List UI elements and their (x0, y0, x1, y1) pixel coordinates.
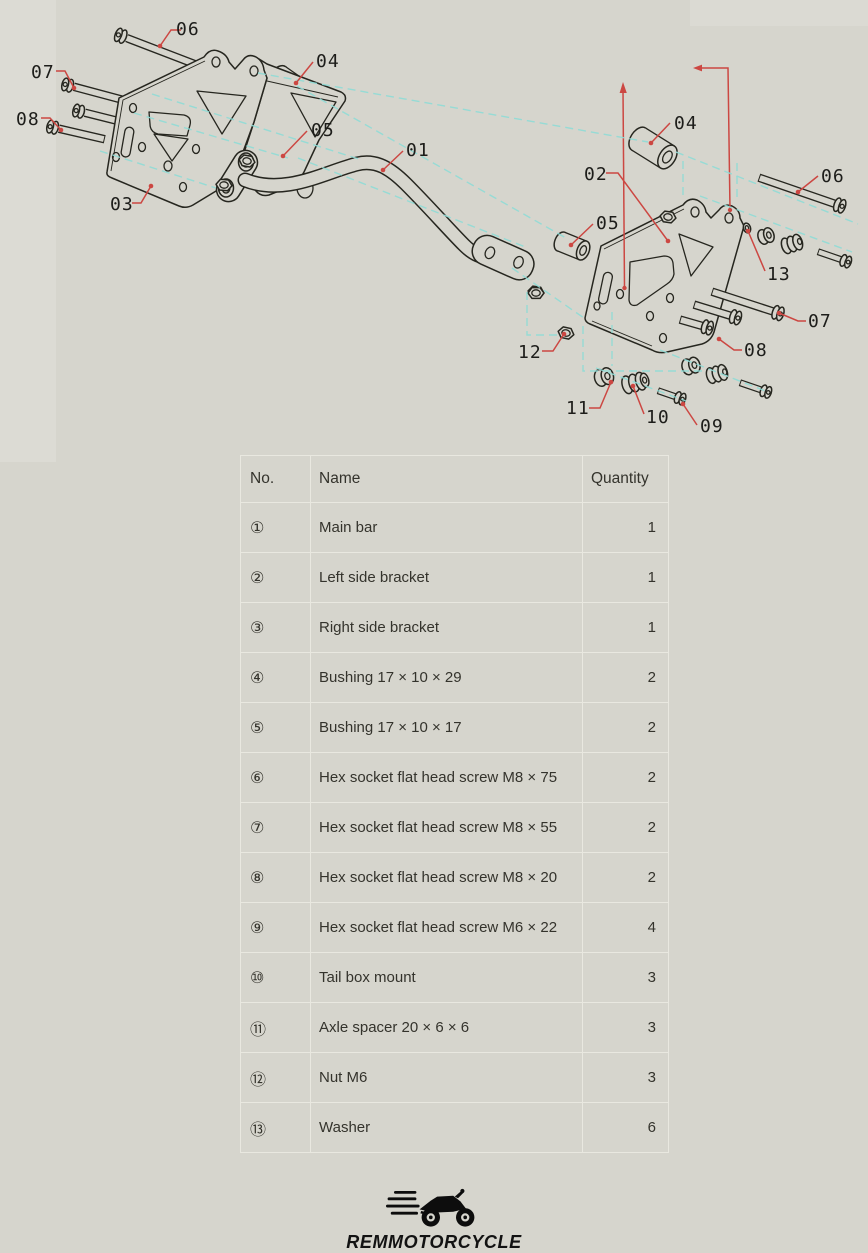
brand-name: REMMOTORCYCLE (346, 1232, 521, 1253)
header-no: No. (241, 456, 310, 502)
parts-table: No. Name Quantity ①Main bar1②Left side b… (240, 455, 669, 1153)
table-row: ③Right side bracket1 (241, 602, 668, 652)
speed-line (391, 1212, 418, 1215)
part-number-label: 06 (821, 166, 845, 187)
left-assembly (46, 27, 545, 298)
rubber-mount-drawing (780, 233, 805, 255)
cell-name: Hex socket flat head screw M8 × 55 (310, 803, 582, 852)
cell-no: ④ (241, 653, 310, 702)
callout-06: 06 (158, 19, 200, 48)
axle-spacer-drawing (593, 366, 616, 387)
cell-quantity: 1 (582, 503, 668, 552)
part-number-label: 01 (406, 140, 430, 161)
cell-no: ⑪ (241, 1003, 310, 1052)
cell-no: ⑨ (241, 903, 310, 952)
exploded-diagram: 060708030405010402050613070812111009 (0, 0, 868, 452)
cell-no: ⑦ (241, 803, 310, 852)
cell-quantity: 3 (582, 1053, 668, 1102)
part-number-label: 10 (646, 407, 670, 428)
cell-no: ⑫ (241, 1053, 310, 1102)
cell-no: ③ (241, 603, 310, 652)
callout-09: 09 (681, 402, 724, 437)
part-number-label: 08 (744, 340, 768, 361)
cell-name: Hex socket flat head screw M8 × 75 (310, 753, 582, 802)
table-row: ⑬Washer6 (241, 1102, 668, 1152)
cell-name: Tail box mount (310, 953, 582, 1002)
part-number-label: 09 (700, 416, 724, 437)
cell-no: ⑬ (241, 1103, 310, 1152)
nut-m6-drawing (528, 288, 544, 299)
cell-no: ⑥ (241, 753, 310, 802)
speed-line (388, 1197, 417, 1200)
table-row: ⑨Hex socket flat head screw M6 × 224 (241, 902, 668, 952)
right-assembly (528, 124, 853, 406)
cell-quantity: 3 (582, 1003, 668, 1052)
part-number-label: 05 (311, 120, 335, 141)
part-number-label: 06 (176, 19, 200, 40)
screw-m6x22-drawing (816, 246, 853, 269)
cell-name: Nut M6 (310, 1053, 582, 1102)
part-number-label: 04 (316, 51, 340, 72)
table-row: ⑩Tail box mount3 (241, 952, 668, 1002)
callout-08: 08 (717, 337, 768, 361)
bushing-17x10x29-drawing (625, 124, 681, 173)
cell-no: ⑤ (241, 703, 310, 752)
screw-m6x22-drawing (738, 377, 773, 399)
cell-name: Axle spacer 20 × 6 × 6 (310, 1003, 582, 1052)
cell-quantity: 1 (582, 553, 668, 602)
cell-quantity: 2 (582, 753, 668, 802)
cell-quantity: 2 (582, 853, 668, 902)
callout-07: 07 (777, 311, 832, 332)
table-row: ⑥Hex socket flat head screw M8 × 752 (241, 752, 668, 802)
part-number-label: 13 (767, 264, 791, 285)
cell-no: ⑩ (241, 953, 310, 1002)
callout-12: 12 (518, 332, 566, 363)
header-quantity: Quantity (582, 456, 668, 502)
part-number-label: 11 (566, 398, 590, 419)
cell-quantity: 3 (582, 953, 668, 1002)
cell-quantity: 2 (582, 803, 668, 852)
cell-quantity: 6 (582, 1103, 668, 1152)
part-number-label: 07 (31, 62, 55, 83)
rubber-mount-drawing (705, 364, 729, 385)
table-body: ①Main bar1②Left side bracket1③Right side… (241, 502, 668, 1152)
bar-end-plate-drawing (468, 231, 539, 284)
cell-no: ① (241, 503, 310, 552)
table-row: ⑤Bushing 17 × 10 × 172 (241, 702, 668, 752)
cell-name: Washer (310, 1103, 582, 1152)
table-row: ⑫Nut M63 (241, 1052, 668, 1102)
callout-11: 11 (566, 380, 613, 419)
motorcycle-icon (386, 1183, 482, 1231)
brand-logo: REMMOTORCYCLE (0, 1183, 868, 1253)
cell-quantity: 4 (582, 903, 668, 952)
part-number-label: 03 (110, 194, 134, 215)
speed-line (386, 1205, 420, 1208)
cell-name: Hex socket flat head screw M6 × 22 (310, 903, 582, 952)
cell-name: Main bar (310, 503, 582, 552)
cell-no: ② (241, 553, 310, 602)
part-number-label: 12 (518, 342, 542, 363)
table-row: ②Left side bracket1 (241, 552, 668, 602)
part-number-label: 02 (584, 164, 608, 185)
axle-spacer-drawing (680, 356, 702, 376)
cell-name: Right side bracket (310, 603, 582, 652)
header-name: Name (310, 456, 582, 502)
table-row: ⑪Axle spacer 20 × 6 × 63 (241, 1002, 668, 1052)
cell-name: Bushing 17 × 10 × 17 (310, 703, 582, 752)
part-number-label: 08 (16, 109, 40, 130)
cell-no: ⑧ (241, 853, 310, 902)
cell-quantity: 2 (582, 653, 668, 702)
cell-quantity: 1 (582, 603, 668, 652)
part-number-label: 07 (808, 311, 832, 332)
cell-name: Bushing 17 × 10 × 29 (310, 653, 582, 702)
table-header-row: No. Name Quantity (241, 456, 668, 502)
speed-line (394, 1191, 416, 1194)
table-row: ①Main bar1 (241, 502, 668, 552)
table-row: ⑧Hex socket flat head screw M8 × 202 (241, 852, 668, 902)
part-number-label: 04 (674, 113, 698, 134)
table-row: ⑦Hex socket flat head screw M8 × 552 (241, 802, 668, 852)
cell-quantity: 2 (582, 703, 668, 752)
part-number-label: 05 (596, 213, 620, 234)
cell-name: Hex socket flat head screw M8 × 20 (310, 853, 582, 902)
manual-page: { "page": { "background": "#d6d5cd" }, "… (0, 0, 868, 1245)
tail-box-mount-spacer-drawing (756, 226, 776, 245)
cell-name: Left side bracket (310, 553, 582, 602)
table-row: ④Bushing 17 × 10 × 292 (241, 652, 668, 702)
